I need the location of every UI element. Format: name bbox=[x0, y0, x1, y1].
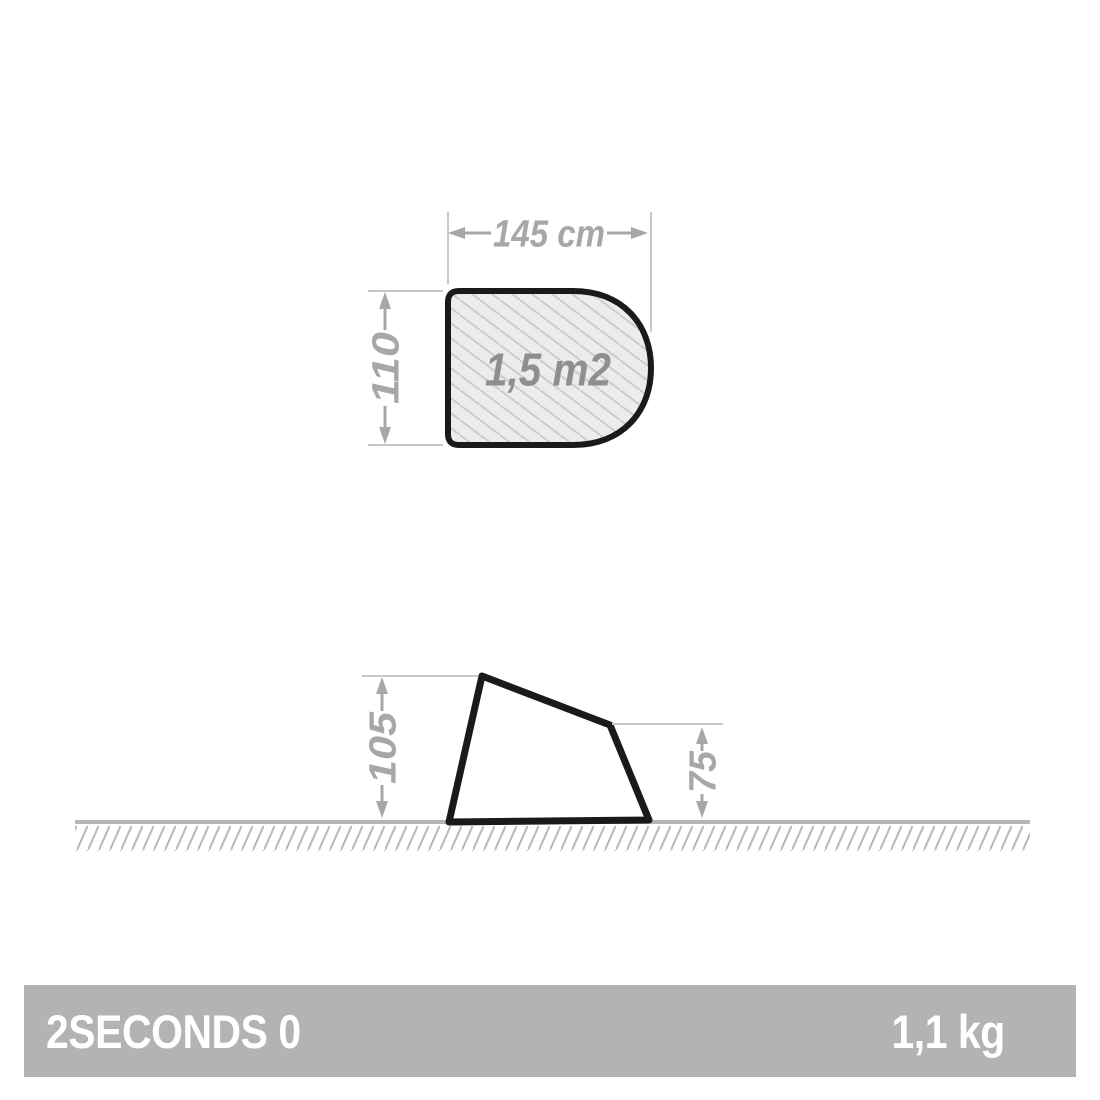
product-name-bar: 2SECONDS 0 bbox=[24, 985, 830, 1077]
arrow-up-icon bbox=[376, 677, 388, 694]
width-dimension-label: 145 cm bbox=[493, 214, 605, 256]
arrow-down-icon bbox=[379, 427, 391, 444]
product-name-label: 2SECONDS 0 bbox=[46, 1004, 301, 1059]
weight-label: 1,1 kg bbox=[891, 1004, 1004, 1059]
arrow-down-icon bbox=[376, 801, 388, 818]
tent-profile-shape bbox=[449, 676, 649, 822]
top-view: 145 cm 110 1,5 m2 bbox=[366, 212, 651, 445]
dimension-diagram: 145 cm 110 1,5 m2 bbox=[0, 0, 1100, 960]
arrow-right-icon bbox=[631, 227, 648, 239]
depth-dimension-label: 110 bbox=[366, 332, 408, 404]
rear-height-label: 75 bbox=[683, 750, 725, 793]
arrow-up-icon bbox=[696, 727, 708, 744]
front-height-label: 105 bbox=[363, 711, 405, 784]
arrow-up-icon bbox=[379, 292, 391, 309]
depth-dimension: 110 bbox=[366, 291, 443, 445]
product-spec-diagram: 145 cm 110 1,5 m2 bbox=[0, 0, 1100, 1100]
floor-area-label: 1,5 m2 bbox=[485, 344, 611, 396]
weight-bar: 1,1 kg bbox=[820, 985, 1076, 1077]
arrow-down-icon bbox=[696, 801, 708, 818]
side-view: 105 75 bbox=[75, 676, 1030, 851]
ground-hatch bbox=[75, 826, 1030, 851]
arrow-left-icon bbox=[448, 227, 465, 239]
